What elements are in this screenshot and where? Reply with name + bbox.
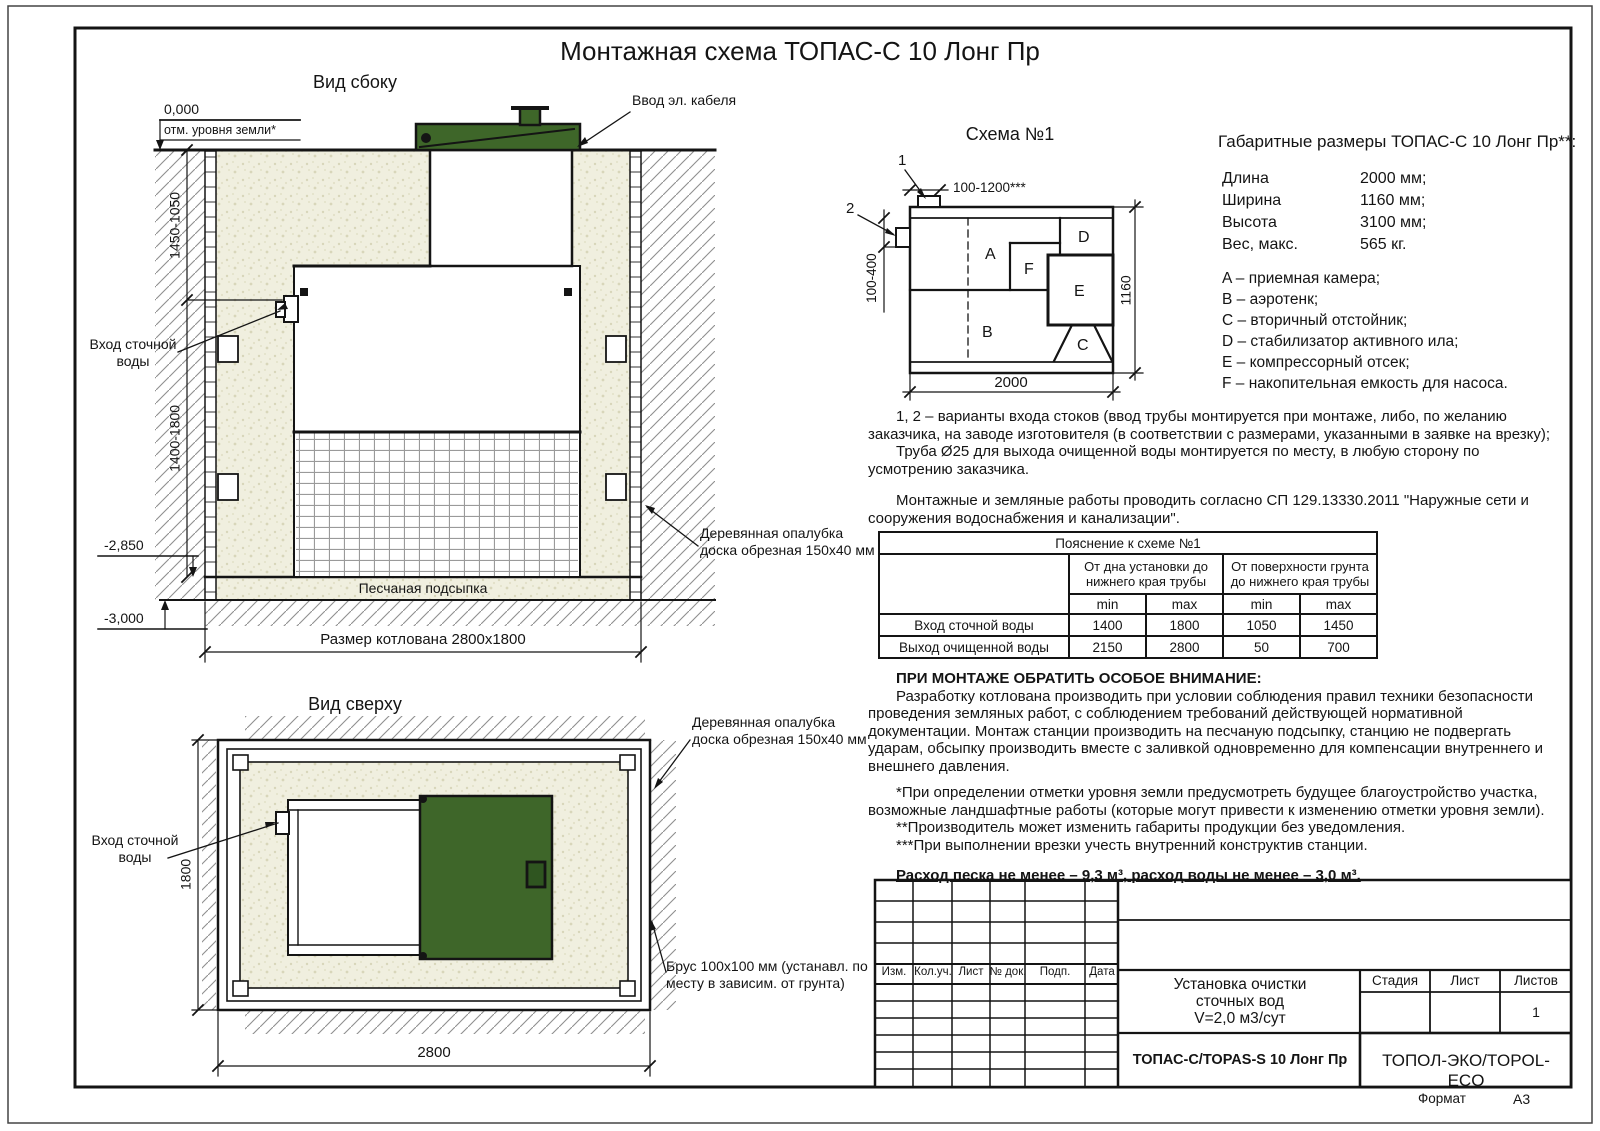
- explanation-table: Пояснение к схеме №1 От дна установки до…: [878, 531, 1378, 659]
- sheets-value: 1: [1515, 1004, 1557, 1021]
- row-label: Выход очищенной воды: [879, 636, 1069, 658]
- note-pipe: Труба Ø25 для выхода очищенной воды монт…: [868, 443, 1562, 478]
- cell: 2800: [1146, 636, 1223, 658]
- legend-item: B – аэротенк;: [1222, 291, 1318, 310]
- min-header: min: [1069, 594, 1146, 614]
- page-title: Монтажная схема ТОПАС-С 10 Лонг Пр: [480, 36, 1120, 67]
- cable-entry-label: Ввод эл. кабеля: [632, 92, 736, 109]
- spec-label: Высота: [1222, 214, 1277, 232]
- compartment-b: B: [982, 323, 993, 342]
- bedding-label: Песчаная подсыпка: [323, 580, 523, 597]
- attention-body: Разработку котлована производить при усл…: [868, 688, 1564, 776]
- corner-beam: [233, 981, 248, 996]
- attention-block: ПРИ МОНТАЖЕ ОБРАТИТЬ ОСОБОЕ ВНИМАНИЕ: Ра…: [868, 670, 1564, 885]
- attention-heading: ПРИ МОНТАЖЕ ОБРАТИТЬ ОСОБОЕ ВНИМАНИЕ:: [868, 670, 1564, 688]
- rev-header-ndok: № док.: [983, 966, 1033, 980]
- pit-size-label: Размер котлована 2800х1800: [278, 631, 568, 649]
- min-header: min: [1223, 594, 1300, 614]
- level-3000: -3,000: [104, 610, 144, 627]
- corner-beam: [233, 755, 248, 770]
- company-name: ТОПОЛ-ЭКО/TOPOL-ECO: [1364, 1051, 1568, 1092]
- dim-2000: 2000: [961, 374, 1061, 392]
- legend-item: A – приемная камера;: [1222, 270, 1380, 289]
- note-sp: Монтажные и земляные работы проводить со…: [868, 492, 1562, 527]
- cell: 1050: [1223, 614, 1300, 636]
- compartment-a: A: [985, 245, 996, 264]
- spec-label: Длина: [1222, 170, 1269, 188]
- ground-level-label: отм. уровня земли*: [164, 123, 276, 138]
- dim-1160: 1160: [1118, 245, 1135, 335]
- col-group-2: От поверхности грунта до нижнего края тр…: [1223, 554, 1377, 594]
- cell: 1800: [1146, 614, 1223, 636]
- drawing-sheet: Монтажная схема ТОПАС-С 10 Лонг Пр Вид с…: [0, 0, 1600, 1131]
- rev-header-podp: Подп.: [1030, 966, 1080, 980]
- dim-left-label: 100-400: [864, 233, 880, 323]
- note-variants: 1, 2 – варианты входа стоков (ввод трубы…: [868, 408, 1562, 443]
- max-header: max: [1300, 594, 1377, 614]
- compartment-d: D: [1078, 228, 1090, 247]
- sheet-header: Лист: [1435, 973, 1495, 989]
- level-2850: -2,850: [104, 537, 144, 554]
- cell: 2150: [1069, 636, 1146, 658]
- spec-value: 565 кг.: [1360, 236, 1406, 254]
- marker-2: 2: [846, 200, 854, 218]
- inlet-variant-2: [896, 228, 910, 247]
- compartment-f: F: [1024, 260, 1034, 279]
- table-corner: [879, 554, 1069, 614]
- legend-item: D – стабилизатор активного ила;: [1222, 333, 1458, 352]
- top-view-drawing: [168, 716, 690, 1076]
- side-view-title: Вид сбоку: [290, 72, 420, 94]
- notes-block: 1, 2 – варианты входа стоков (ввод трубы…: [868, 408, 1562, 527]
- zero-level-mark: 0,000: [164, 101, 199, 118]
- top-view-title: Вид сверху: [290, 694, 420, 716]
- inlet-label-side: Вход сточной воды: [78, 336, 188, 370]
- stage-header: Стадия: [1365, 973, 1425, 989]
- dim-upper-label: 1450-1050: [167, 175, 184, 275]
- beam-label: Брус 100х100 мм (устанавл. по месту в за…: [666, 958, 868, 992]
- project-title: Установка очистки сточных вод V=2,0 м3/с…: [1124, 976, 1356, 1027]
- inlet-variant-1: [918, 196, 940, 207]
- inlet-label-top: Вход сточной воды: [80, 832, 190, 866]
- legend-item: E – компрессорный отсек;: [1222, 354, 1410, 373]
- rev-header-data: Дата: [1077, 966, 1127, 980]
- side-view-drawing: [98, 108, 715, 662]
- schema-title: Схема №1: [945, 124, 1075, 146]
- formwork-plank-left: [205, 151, 216, 600]
- spec-label: Вес, макс.: [1222, 236, 1298, 254]
- format-value: А3: [1513, 1091, 1530, 1108]
- footnote-1: *При определении отметки уровня земли пр…: [868, 784, 1564, 819]
- spec-value: 3100 мм;: [1360, 214, 1426, 232]
- table-title: Пояснение к схеме №1: [879, 532, 1377, 554]
- marker-1: 1: [898, 152, 906, 170]
- compartment-c: C: [1077, 336, 1089, 355]
- sheets-header: Листов: [1505, 973, 1567, 989]
- consumption-note: Расход песка не менее – 9,3 м³, расход в…: [868, 867, 1564, 885]
- model-name: ТОПАС-С/TOPAS-S 10 Лонг Пр: [1124, 1052, 1356, 1069]
- lid-hatch-opening: [527, 862, 545, 887]
- footnote-2: **Производитель может изменить габариты …: [868, 819, 1564, 837]
- formwork-label-top: Деревянная опалубка доска обрезная 150х4…: [692, 714, 867, 748]
- corner-beam: [620, 755, 635, 770]
- cell: 700: [1300, 636, 1377, 658]
- dim-2800: 2800: [384, 1044, 484, 1062]
- dim-1800: 1800: [178, 824, 195, 924]
- table-row: Выход очищенной воды 2150 2800 50 700: [879, 636, 1377, 658]
- spec-value: 2000 мм;: [1360, 170, 1426, 188]
- specs-heading: Габаритные размеры ТОПАС-С 10 Лонг Пр**:: [1218, 132, 1576, 152]
- schema1-drawing: [858, 170, 1143, 400]
- spec-label: Ширина: [1222, 192, 1281, 210]
- corner-beam: [620, 981, 635, 996]
- compartment-e: E: [1074, 282, 1085, 301]
- footnote-3: ***При выполнении врезки учесть внутренн…: [868, 837, 1564, 855]
- col-group-1: От дна установки до нижнего края трубы: [1069, 554, 1223, 594]
- legend-item: F – накопительная емкость для насоса.: [1222, 375, 1508, 394]
- cell: 1450: [1300, 614, 1377, 636]
- cell: 50: [1223, 636, 1300, 658]
- max-header: max: [1146, 594, 1223, 614]
- formwork-plank-right: [630, 151, 641, 600]
- tank-lower-grid: [296, 433, 578, 576]
- dim-lower-label: 1400-1800: [167, 388, 184, 488]
- dim-top-label: 100-1200***: [953, 180, 1026, 196]
- spec-value: 1160 мм;: [1360, 192, 1425, 210]
- row-label: Вход сточной воды: [879, 614, 1069, 636]
- vent-pipe: [520, 108, 540, 125]
- table-row: Вход сточной воды 1400 1800 1050 1450: [879, 614, 1377, 636]
- legend-item: C – вторичный отстойник;: [1222, 312, 1407, 331]
- format-label: Формат: [1418, 1091, 1466, 1107]
- tank-neck: [430, 150, 572, 266]
- cell: 1400: [1069, 614, 1146, 636]
- formwork-label-side: Деревянная опалубка доска обрезная 150х4…: [700, 525, 875, 559]
